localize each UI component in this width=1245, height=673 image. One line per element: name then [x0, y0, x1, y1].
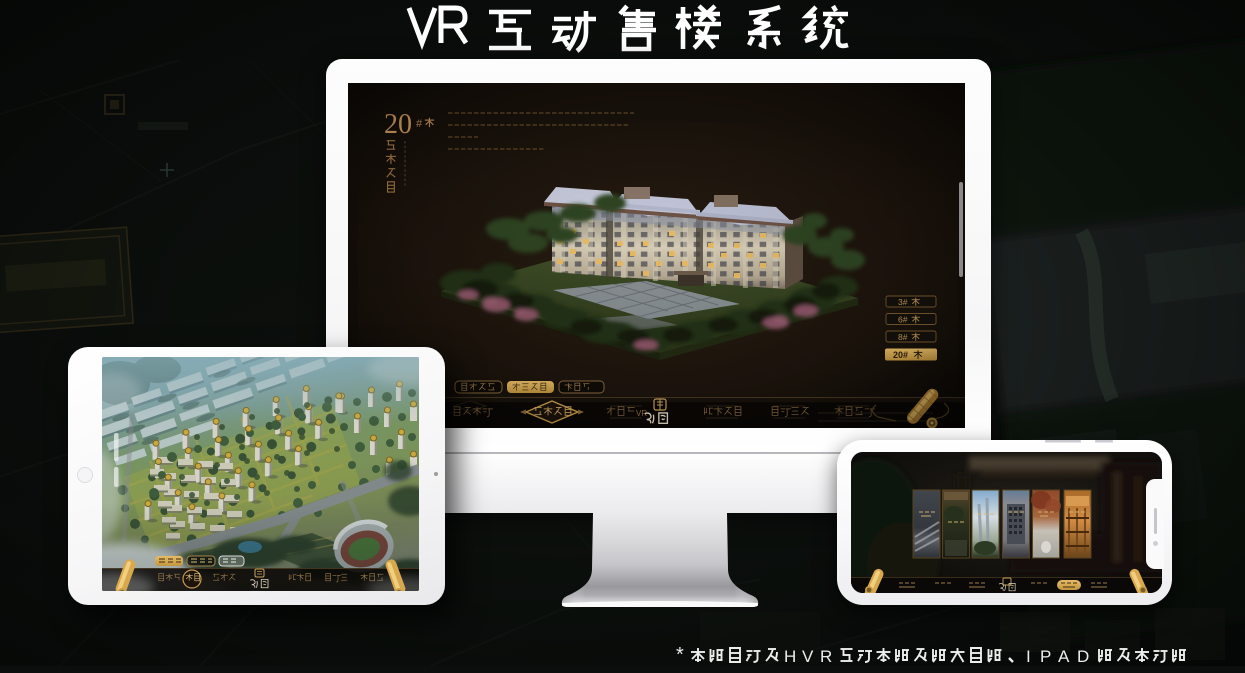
svg-text:I: I	[1026, 647, 1031, 666]
svg-text:P: P	[1040, 647, 1051, 666]
svg-text:*: *	[676, 644, 684, 666]
svg-text:H: H	[784, 647, 796, 666]
svg-text:R: R	[820, 647, 832, 666]
svg-text:D: D	[1077, 647, 1089, 666]
svg-text:A: A	[1058, 647, 1070, 666]
svg-text:V: V	[802, 647, 814, 666]
